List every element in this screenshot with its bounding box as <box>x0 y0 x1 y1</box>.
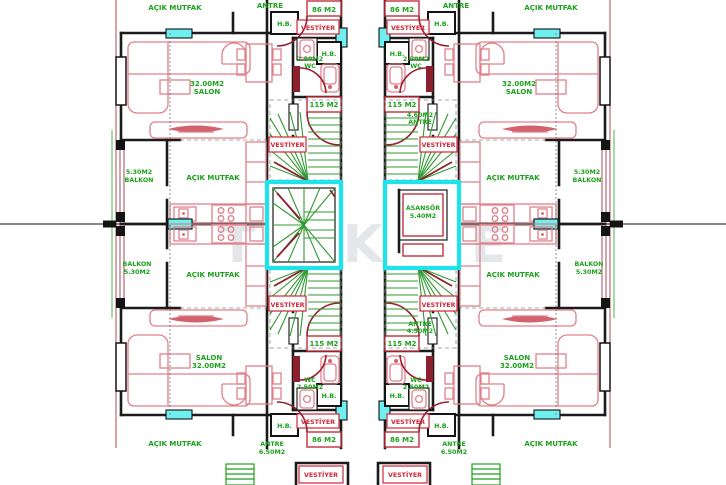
label-asansor: ASANSÖR <box>406 203 440 212</box>
label-balkon-sw: BALKON <box>123 261 152 268</box>
label-salon-area-ne: 32.00M2 <box>502 80 536 88</box>
label-115m2-top-right: 115 M2 <box>388 101 417 109</box>
label-vestiyer-top-right: VESTİYER <box>391 23 425 32</box>
label-acik-mutfak-top-right: AÇIK MUTFAK <box>524 4 578 12</box>
label-asansor-area: 5.40M2 <box>410 213 436 220</box>
label-86m2-bottom-left: 86 M2 <box>312 436 336 444</box>
label-balkon-area-ne: 5.30M2 <box>574 169 600 176</box>
label-acik-mutfak-bottom-right: AÇIK MUTFAK <box>524 440 578 448</box>
label-hb-top-right-outer: H.B. <box>434 21 449 28</box>
label-wc-top-left: WC <box>304 63 316 70</box>
label-balkon-area-nw: 5.30M2 <box>126 169 152 176</box>
label-salon-area-se: 32.00M2 <box>500 362 534 370</box>
label-vestiyer-stairs-nw: VESTİYER <box>270 140 304 149</box>
elevator-core <box>385 182 459 268</box>
floor-plan-canvas: TEKCE <box>0 0 726 485</box>
label-acik-mutfak-nw: AÇIK MUTFAK <box>186 174 240 182</box>
label-hb-bottom-left-inner: H.B. <box>322 393 337 400</box>
label-wc-top-right: WC <box>410 63 422 70</box>
label-antre-name-bottom-strip-right: ANTRE <box>442 441 466 448</box>
label-antre-area-bottom-strip-right: 6.50M2 <box>441 449 467 456</box>
label-salon-sw: SALON <box>196 354 223 362</box>
label-wc-bottom-left: WC <box>304 377 316 384</box>
label-wc-area-bottom-left: 2.50M2 <box>297 384 323 391</box>
label-vestiyer-top-left: VESTİYER <box>301 23 335 32</box>
label-antre-name-bottom-strip-left: ANTRE <box>260 441 284 448</box>
label-wc-area-top-left: 2.50M2 <box>297 56 323 63</box>
label-hb-top-left-outer: H.B. <box>277 21 292 28</box>
label-86m2-top-left: 86 M2 <box>312 6 336 14</box>
label-salon-se: SALON <box>504 354 531 362</box>
label-vestiyer-bottom-left: VESTİYER <box>301 417 335 426</box>
label-acik-mutfak-top-left: AÇIK MUTFAK <box>148 4 202 12</box>
label-antre-area-bottom-right: 4.50M2 <box>407 328 433 335</box>
label-115m2-bottom-right: 115 M2 <box>388 340 417 348</box>
label-acik-mutfak-se: AÇIK MUTFAK <box>486 271 540 279</box>
label-wc-area-bottom-right: 2.50M2 <box>403 384 429 391</box>
label-hb-bottom-right-outer: H.B. <box>434 423 449 430</box>
label-antre-name-top-right: ANTRE <box>408 119 432 126</box>
label-balkon-ne: BALKON <box>573 177 602 184</box>
label-salon-nw: SALON <box>194 88 221 96</box>
label-salon-area-sw: 32.00M2 <box>192 362 226 370</box>
label-vestiyer-stairs-ne: VESTİYER <box>421 140 455 149</box>
label-antre-top-left: ANTRE <box>257 2 283 10</box>
label-antre-name-bottom-right: ANTRE <box>408 321 432 328</box>
label-balkon-area-sw: 5.30M2 <box>124 269 150 276</box>
label-vestiyer-stairs-sw: VESTİYER <box>270 300 304 309</box>
label-115m2-bottom-left: 115 M2 <box>310 340 339 348</box>
label-wc-area-top-right: 2.50M2 <box>403 56 429 63</box>
label-acik-mutfak-bottom-left: AÇIK MUTFAK <box>148 440 202 448</box>
label-hb-bottom-right-inner: H.B. <box>390 393 405 400</box>
label-vestiyer-box-bottom-left: VESTİYER <box>304 470 338 479</box>
label-balkon-se: BALKON <box>575 261 604 268</box>
label-vestiyer-box-bottom-right: VESTİYER <box>388 470 422 479</box>
label-acik-mutfak-sw: AÇIK MUTFAK <box>186 271 240 279</box>
label-balkon-nw: BALKON <box>125 177 154 184</box>
label-antre-area-bottom-strip-left: 6.50M2 <box>259 449 285 456</box>
label-acik-mutfak-ne: AÇIK MUTFAK <box>486 174 540 182</box>
label-antre-area-top-right: 4.60M2 <box>407 112 433 119</box>
label-hb-bottom-left-outer: H.B. <box>277 423 292 430</box>
floor-plan-page: TEKCE <box>0 0 726 485</box>
label-86m2-bottom-right: 86 M2 <box>390 436 414 444</box>
label-wc-bottom-right: WC <box>410 377 422 384</box>
label-hb-top-left-inner: H.B. <box>322 51 337 58</box>
label-vestiyer-stairs-se: VESTİYER <box>421 300 455 309</box>
label-salon-area-nw: 32.00M2 <box>190 80 224 88</box>
label-antre-top-right: ANTRE <box>443 2 469 10</box>
stairwell-core <box>267 182 341 268</box>
label-86m2-top-right: 86 M2 <box>390 6 414 14</box>
label-115m2-top-left: 115 M2 <box>310 101 339 109</box>
label-balkon-area-se: 5.30M2 <box>576 269 602 276</box>
label-salon-ne: SALON <box>506 88 533 96</box>
label-vestiyer-bottom-right: VESTİYER <box>391 417 425 426</box>
